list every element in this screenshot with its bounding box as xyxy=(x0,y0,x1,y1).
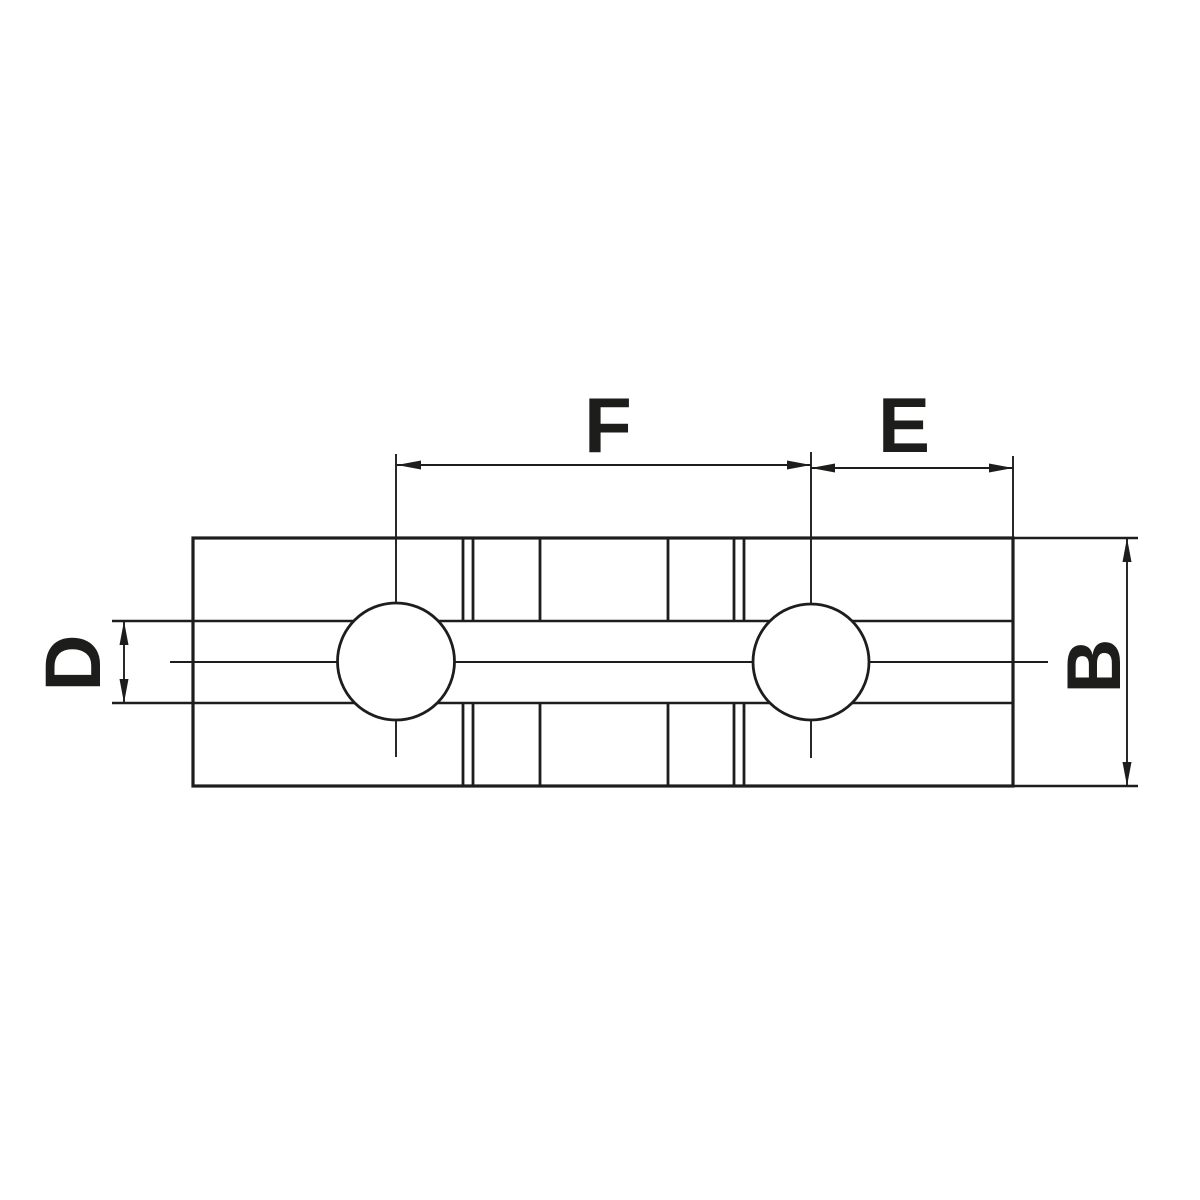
arrow-b-top xyxy=(1123,538,1132,562)
right-hole-circle xyxy=(753,604,869,720)
arrow-f-left xyxy=(397,461,421,470)
arrow-b-bottom xyxy=(1123,762,1132,786)
arrow-e-left xyxy=(811,464,835,473)
arrow-d-top xyxy=(120,621,129,645)
technical-drawing: F E D B xyxy=(0,0,1200,1200)
arrow-d-bottom xyxy=(120,679,129,703)
label-e: E xyxy=(878,381,930,469)
label-d: D xyxy=(28,634,117,691)
arrow-f-right xyxy=(787,461,811,470)
arrow-e-right xyxy=(989,464,1013,473)
label-f: F xyxy=(584,381,632,469)
drawing-canvas: F E D B xyxy=(0,0,1200,1200)
dimension-lines-group xyxy=(124,465,1138,786)
centerlines-group xyxy=(170,452,1048,758)
dimension-arrows-group xyxy=(120,461,1132,787)
label-b: B xyxy=(1052,639,1137,694)
left-hole-circle xyxy=(338,603,455,720)
